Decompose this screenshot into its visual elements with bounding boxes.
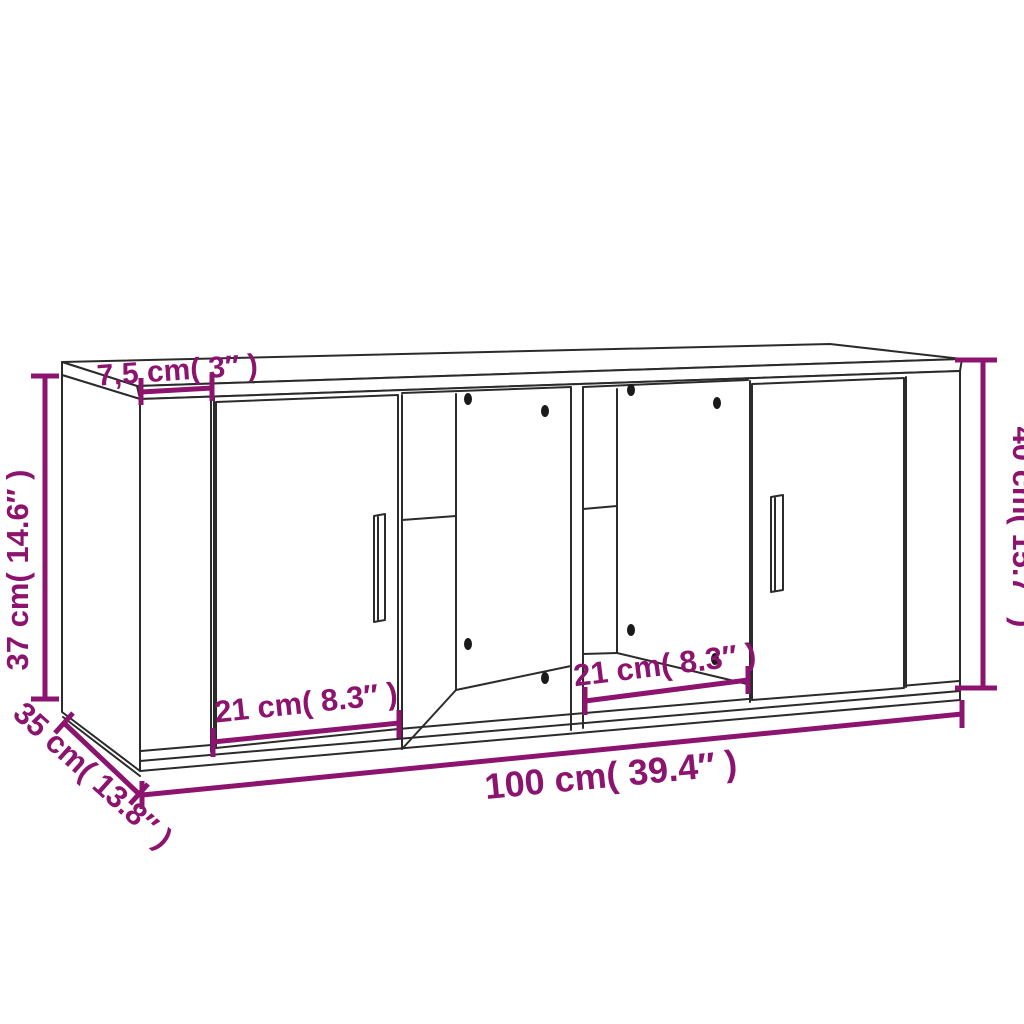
shelf-pin-hole xyxy=(464,393,472,405)
dimension-line-left-height xyxy=(31,376,59,699)
dimension-label-left-height: 37 cm( 14.6″ ) xyxy=(0,470,35,671)
dimension-label-width: 100 cm( 39.4″ ) xyxy=(483,742,739,807)
shelf-pin-hole xyxy=(464,638,472,650)
shelf-pin-hole xyxy=(541,405,549,417)
right-door-handle xyxy=(771,495,783,592)
shelf-pin-hole xyxy=(713,397,721,409)
dimension-line-right-height xyxy=(955,360,997,688)
product-dimension-diagram: 7,5 cm( 3″ ) 37 cm( 14.6″ ) 40 cm( 15.7″… xyxy=(0,0,1024,1024)
cabinet-dimension-drawing: 7,5 cm( 3″ ) 37 cm( 14.6″ ) 40 cm( 15.7″… xyxy=(0,0,1024,1024)
dimension-label-right-height: 40 cm( 15.7″ ) xyxy=(1006,427,1024,628)
cabinet-left-side-panel xyxy=(62,375,140,771)
shelf-pin-hole xyxy=(541,672,549,684)
left-door-handle xyxy=(374,514,385,622)
shelf-pin-hole xyxy=(627,384,635,396)
cabinet-drawing xyxy=(62,344,962,776)
shelf-pin-hole xyxy=(627,624,635,636)
